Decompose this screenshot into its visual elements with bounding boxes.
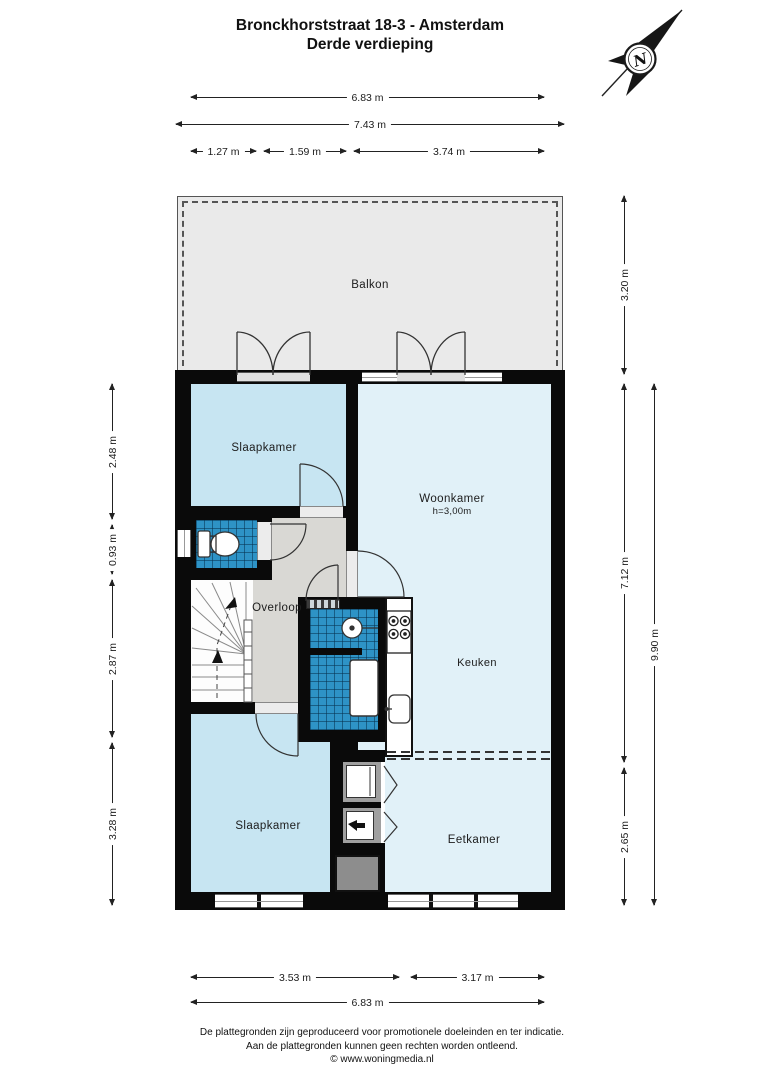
stairwell <box>191 580 253 702</box>
room-label-overloop: Overloop <box>252 602 302 614</box>
room-overloop-lower <box>253 580 298 702</box>
room-label-woonkamer: Woonkamer h=3,00m <box>419 493 484 517</box>
room-label-balkon: Balkon <box>351 279 389 291</box>
dim-bottom-total: 6.83 m <box>190 997 545 1009</box>
room-badkamer <box>310 609 378 730</box>
window-toilet <box>177 530 191 557</box>
dim-top-outer: 7.43 m <box>175 119 565 131</box>
window-top-1 <box>362 372 397 382</box>
footer-copyright: © www.woningmedia.nl <box>0 1053 764 1067</box>
door-opening-toilet <box>257 522 272 560</box>
dim-bottom-seg2: 3.17 m <box>410 972 545 984</box>
duct-shaft <box>335 855 380 892</box>
door-opening-slaapkamer-top <box>300 506 343 518</box>
dim-right-total: 9.90 m <box>649 383 661 906</box>
dim-top-seg2: 1.59 m <box>263 146 347 158</box>
dim-top-inner: 6.83 m <box>190 92 545 104</box>
door-opening-woonkamer <box>346 551 358 597</box>
page-title: Bronckhorststraat 18-3 - Amsterdam Derde… <box>120 16 620 54</box>
woonkamer-ceiling-height: h=3,00m <box>419 506 484 517</box>
dim-right-upper: 7.12 m <box>619 383 631 763</box>
window-mullion <box>474 893 478 909</box>
window-top-2 <box>465 372 502 382</box>
door-opening-slaapkamer-bottom <box>255 702 298 714</box>
title-address: Bronckhorststraat 18-3 - Amsterdam <box>120 16 620 35</box>
dim-top-seg3: 3.74 m <box>353 146 545 158</box>
closet-door-jamb <box>381 762 385 843</box>
washing-machine <box>346 811 374 840</box>
dim-left-seg3: 2.87 m <box>107 579 119 738</box>
window-mullion <box>429 893 433 909</box>
room-toilet <box>196 520 257 568</box>
room-label-slaapkamer-bottom: Slaapkamer <box>235 820 300 832</box>
title-floor: Derde verdieping <box>120 35 620 54</box>
footer-disclaimer: De plattegronden zijn geproduceerd voor … <box>0 1026 764 1067</box>
window-bottom-right <box>388 894 518 908</box>
room-label-keuken: Keuken <box>457 657 497 669</box>
door-threshold-badkamer <box>306 599 340 609</box>
floor-plan-page: Bronckhorststraat 18-3 - Amsterdam Derde… <box>0 0 764 1080</box>
footer-line-1: De plattegronden zijn geproduceerd voor … <box>0 1026 764 1040</box>
footer-line-2: Aan de plattegronden kunnen geen rechten… <box>0 1040 764 1054</box>
dim-left-seg2: 0.93 m <box>107 524 119 575</box>
room-label-eetkamer: Eetkamer <box>448 834 500 846</box>
bathroom-partition-wall <box>310 648 362 655</box>
compass-letter: N <box>630 49 651 71</box>
kitchen-counter <box>385 597 413 757</box>
dim-right-lower: 2.65 m <box>619 767 631 906</box>
closet-divider-wall <box>343 802 381 808</box>
window-bottom-left <box>215 894 303 908</box>
boiler-unit <box>346 765 376 798</box>
dim-bottom-seg1: 3.53 m <box>190 972 400 984</box>
dim-right-balcony: 3.20 m <box>619 195 631 375</box>
window-mullion <box>257 893 261 909</box>
dim-left-seg4: 3.28 m <box>107 742 119 906</box>
room-label-slaapkamer-top: Slaapkamer <box>231 442 296 454</box>
balcony-door-sill-left <box>237 372 310 382</box>
dim-left-seg1: 2.48 m <box>107 383 119 520</box>
dim-top-seg1: 1.27 m <box>190 146 257 158</box>
balcony-door-sill-right <box>397 372 465 382</box>
room-eetkamer <box>385 757 551 892</box>
woonkamer-name: Woonkamer <box>419 493 484 505</box>
